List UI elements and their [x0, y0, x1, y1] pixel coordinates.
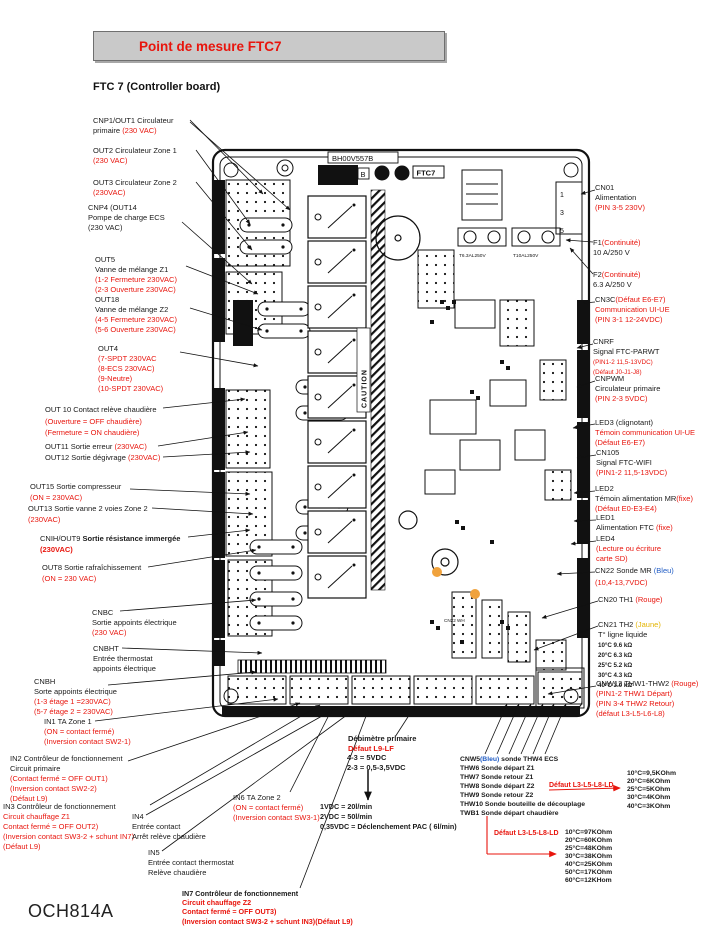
- callout-line: 20°C 6.3 kΩ: [598, 650, 661, 660]
- callout-text: CNP4 (OUT14: [88, 203, 137, 212]
- callout-line: OUT5: [95, 255, 177, 265]
- callout-text: (Inversion contact SW2-1): [44, 737, 131, 746]
- callout-text: (Rouge): [635, 595, 662, 604]
- callout-text: (5-6 Ouverture 230VAC): [95, 325, 176, 334]
- callout-in2: IN2 Contrôleur de fonctionnementCircuit …: [10, 754, 123, 803]
- callout-line: (ON = 230 VAC): [42, 574, 141, 585]
- callout-line: (ON = 230VAC): [30, 492, 121, 503]
- callout-text: THW8 Sonde départ Z2: [460, 783, 534, 790]
- callout-line: (défaut L3-L5-L6-L8): [596, 709, 698, 719]
- callout-debitmetre: Débimètre primaireDéfaut L9-LF: [348, 734, 416, 754]
- callout-line: Témoin communication UI-UE: [595, 428, 695, 438]
- callout-text: (10,4-13,7VDC): [595, 578, 648, 587]
- callout-line: Contact fermé = OFF OUT2): [3, 822, 134, 832]
- callout-cnpwm: CNPWMCirculateur primaire(PIN 2-3 5VDC): [595, 374, 660, 404]
- callout-text: 40°C=3KOhm: [627, 803, 670, 810]
- callout-text: (230 VAC): [122, 126, 156, 135]
- callout-text: Témoin alimentation MR: [595, 494, 676, 503]
- callout-line: F2(Continuité): [593, 270, 641, 280]
- callout-line: CNBC: [92, 608, 177, 618]
- callout-text: (Ouverture = OFF chaudière): [45, 417, 142, 426]
- cn01-pin-1: 1: [560, 192, 564, 199]
- callout-text: LED1: [596, 513, 615, 522]
- callout-text: (PIN 3-4 THW2 Retour): [596, 699, 674, 708]
- callout-text: Défaut L3-L5-L8-LD: [549, 782, 614, 789]
- callout-line: (PIN 2-3 5VDC): [595, 394, 660, 404]
- callout-text: CN20 TH1: [598, 595, 635, 604]
- callout-text: Communication UI-UE: [595, 305, 670, 314]
- callout-text: (PIN1-2 11,5-13VDC): [593, 359, 653, 366]
- callout-line: CN21 TH2 (Jaune): [598, 620, 661, 630]
- callout-line: (PIN 3-1 12-24VDC): [595, 315, 670, 325]
- callout-in4: IN4Entrée contactArrêt relève chaudière: [132, 812, 206, 842]
- callout-line: THW10 Sonde bouteille de découplage: [460, 800, 585, 809]
- callout-line: 10°C=9,5KOhm: [627, 770, 676, 778]
- callout-text: IN5: [148, 848, 160, 857]
- callout-text: (Rouge): [671, 679, 698, 688]
- ftc7-label: FTC7: [417, 169, 436, 178]
- callout-text: CN105: [596, 448, 619, 457]
- callout-text: Circuit chauffage Z1: [3, 812, 70, 821]
- callout-text: (ON = 230 VAC): [42, 574, 96, 583]
- callout-line: Contact fermé = OFF OUT3): [182, 907, 353, 916]
- callout-line: appoints électrique: [93, 664, 156, 674]
- callout-text: appoints électrique: [93, 664, 156, 673]
- callout-text: (Défaut L9): [3, 842, 41, 851]
- callout-line: Sortie appoints électrique: [92, 618, 177, 628]
- rev-label: B: [361, 170, 366, 179]
- callout-line: primaire (230 VAC): [93, 126, 173, 136]
- callout-led1: LED1Alimentation FTC (fixe): [596, 513, 673, 533]
- callout-line: CNP1/OUT1 Circulateur: [93, 116, 173, 126]
- callout-line: OUT 10 Contact relève chaudière: [45, 404, 157, 416]
- callout-text: 2-3 = 0,5-3,5VDC: [347, 763, 406, 772]
- callout-text: 30°C=38KOhm: [565, 853, 612, 860]
- callout-cnp1: CNP1/OUT1 Circulateurprimaire (230 VAC): [93, 116, 173, 136]
- callout-out12: OUT12 Sortie dégivrage (230VAC): [45, 453, 160, 463]
- callout-text: (230VAC): [114, 442, 146, 451]
- callout-line: IN4: [132, 812, 206, 822]
- callout-text: (Inversion contact SW3-1): [233, 813, 320, 822]
- callout-text: (230 VAC): [88, 223, 122, 232]
- callout-text: OUT18: [95, 295, 119, 304]
- callout-line: IN5: [148, 848, 234, 858]
- callout-line: (4-5 Fermeture 230VAC): [95, 315, 177, 325]
- callout-line: CNBH: [34, 677, 117, 687]
- callout-line: IN6 TA Zone 2: [233, 793, 320, 803]
- callout-line: 60°C=12KHom: [565, 877, 612, 885]
- callout-defaut1: Défaut L3-L5-L8-LD: [549, 782, 614, 790]
- callout-text: (Bleu): [654, 566, 674, 575]
- callout-out13: OUT13 Sortie vanne 2 voies Zone 2(230VAC…: [28, 503, 148, 526]
- callout-out3: OUT3 Circulateur Zone 2(230VAC): [93, 178, 177, 198]
- callout-line: CN20 TH1 (Rouge): [598, 595, 663, 605]
- callout-line: 25°C 5.2 kΩ: [598, 660, 661, 670]
- callout-f1: F1(Continuité)10 A/250 V: [593, 238, 641, 258]
- callout-line: 6.3 A/250 V: [593, 280, 641, 290]
- callout-text: (PIN 3-5 230V): [595, 203, 645, 212]
- callout-ohm1: 10°C=9,5KOhm20°C=6KOhm25°C=5KOhm30°C=4KO…: [627, 770, 676, 811]
- callout-cnbht: CNBHTEntrée thermostatappoints électriqu…: [93, 644, 156, 674]
- callout-line: (Lecture ou écriture: [596, 544, 661, 554]
- callout-text: (Défaut E6-E7): [615, 295, 665, 304]
- callout-text: Alimentation FTC: [596, 523, 656, 532]
- callout-line: 40°C=25KOhm: [565, 861, 612, 869]
- caution-label: CAUTION: [362, 369, 369, 408]
- callout-text: 25°C 5.2 kΩ: [598, 662, 632, 669]
- callout-line: (1-3 étage 1 =230VAC): [34, 697, 117, 707]
- callout-line: CN3C(Défaut E6-E7): [595, 295, 670, 305]
- callout-line: (PIN1-2 THW1 Départ): [596, 689, 698, 699]
- callout-text: (230VAC): [128, 453, 160, 462]
- callout-line: CN22 Sonde MR (Bleu): [595, 565, 674, 577]
- callout-line: (Inversion contact SW2-2): [10, 784, 123, 794]
- callout-text: THW10 Sonde bouteille de découplage: [460, 801, 585, 808]
- callout-in3: IN3 Contrôleur de fonctionnementCircuit …: [3, 802, 134, 851]
- callout-text: OUT13 Sortie vanne 2 voies Zone 2: [28, 504, 148, 513]
- callout-text: (Continuité): [602, 238, 641, 247]
- callout-text: OUT11 Sortie erreur: [45, 442, 114, 451]
- callout-text: (Inversion contact SW3-2 + schunt IN3)(D…: [182, 917, 353, 926]
- callout-text: 50°C=17KOhm: [565, 869, 612, 876]
- callout-line: Circuit chauffage Z2: [182, 898, 353, 907]
- callout-line: (Défaut L9): [3, 842, 134, 852]
- callout-text: (ON = 230VAC): [30, 493, 82, 502]
- callout-line: OUT4: [98, 344, 163, 354]
- callout-line: OUT18: [95, 295, 177, 305]
- callout-line: OUT8 Sortie rafraîchissement: [42, 563, 141, 574]
- callout-cn22: CN22 Sonde MR (Bleu)(10,4-13,7VDC): [595, 565, 674, 589]
- callout-text: (5-7 étage 2 = 230VAC): [34, 707, 113, 716]
- callout-line: (230 VAC): [92, 628, 177, 638]
- callout-text: Entrée thermostat: [93, 654, 153, 663]
- callout-in6: IN6 TA Zone 2(ON = contact fermé)(Invers…: [233, 793, 320, 823]
- callout-line: (PIN 3-4 THW2 Retour): [596, 699, 698, 709]
- callout-text: THW7 Sonde retour Z1: [460, 774, 533, 781]
- callout-text: (ON = contact fermé): [233, 803, 303, 812]
- callout-text: 10°C=97KOhm: [565, 829, 612, 836]
- callout-text: LED4: [596, 534, 615, 543]
- callout-line: IN2 Contrôleur de fonctionnement: [10, 754, 123, 764]
- callout-line: Relève chaudière: [148, 868, 234, 878]
- callout-text: OUT12 Sortie dégivrage: [45, 453, 128, 462]
- callout-cnw12: CNW12 THW1-THW2 (Rouge)(PIN1-2 THW1 Dépa…: [596, 679, 698, 719]
- callout-line: (ON = contact fermé): [233, 803, 320, 813]
- callout-text: (230VAC): [40, 545, 73, 554]
- callout-text: LED3 (clignotant): [595, 418, 653, 427]
- callout-out4: OUT4(7-SPDT 230VAC(8-ECS 230VAC)(9-Neutr…: [98, 344, 163, 393]
- cn01-pin-3: 3: [560, 210, 564, 217]
- callout-line: LED2: [595, 484, 693, 494]
- callout-text: OUT8 Sortie rafraîchissement: [42, 563, 141, 572]
- callout-text: 1VDC = 20l/min: [320, 802, 372, 811]
- callout-text: CN22 Sonde MR: [595, 566, 654, 575]
- callout-line: (Fermeture = ON chaudière): [45, 427, 157, 439]
- callout-line: (7-SPDT 230VAC: [98, 354, 163, 364]
- document-reference: OCH814A: [28, 901, 114, 922]
- callout-line: 10°C=97KOhm: [565, 829, 612, 837]
- callout-text: IN1 TA Zone 1: [44, 717, 92, 726]
- callout-line: (ON = contact fermé): [44, 727, 131, 737]
- callout-line: Sorte appoints électrique: [34, 687, 117, 697]
- callout-in1: IN1 TA Zone 1(ON = contact fermé)(Invers…: [44, 717, 131, 747]
- callout-text: (fixe): [656, 523, 673, 532]
- callout-text: (Contact fermé = OFF OUT1): [10, 774, 108, 783]
- callout-text: CNW5: [460, 756, 480, 763]
- callout-text: Contact fermé = OFF OUT2): [3, 822, 98, 831]
- callout-text: Relève chaudière: [148, 868, 206, 877]
- callout-out15: OUT15 Sortie compresseur(ON = 230VAC): [30, 481, 121, 504]
- callout-line: OUT11 Sortie erreur (230VAC): [45, 442, 147, 452]
- callout-line: (Inversion contact SW3-2 + schunt IN3)(D…: [182, 917, 353, 926]
- callout-line: 2-3 = 0,5-3,5VDC: [347, 763, 406, 773]
- callout-text: (Défaut E0-E3-E4): [595, 504, 657, 513]
- callout-line: (1-2 Fermeture 230VAC): [95, 275, 177, 285]
- callout-line: (Défaut E6-E7): [595, 438, 695, 448]
- callout-cnih: CNIH/OUT9 Sortie résistance immergée(230…: [40, 533, 180, 556]
- callout-line: (Inversion contact SW3-2 + schunt IN7): [3, 832, 134, 842]
- callout-text: 60°C=12KHom: [565, 877, 612, 884]
- callout-text: (Lecture ou écriture: [596, 544, 661, 553]
- callout-in7: IN7 Contrôleur de fonctionnementCircuit …: [182, 889, 353, 926]
- callout-out18: OUT18Vanne de mélange Z2(4-5 Fermeture 2…: [95, 295, 177, 335]
- callout-text: (1-3 étage 1 =230VAC): [34, 697, 111, 706]
- callout-text: sonde THW4 ECS: [499, 756, 558, 763]
- callout-led2: LED2Témoin alimentation MR(fixe)(Défaut …: [595, 484, 693, 514]
- callout-cnbc: CNBCSortie appoints électrique(230 VAC): [92, 608, 177, 638]
- callout-text: CNW12 THW1-THW2: [596, 679, 671, 688]
- callout-line: CNW5(Bleu) sonde THW4 ECS: [460, 755, 585, 764]
- callout-line: 2VDC = 50l/min: [320, 812, 457, 822]
- callout-line: Pompe de charge ECS: [88, 213, 165, 223]
- callout-text: (230VAC): [28, 515, 60, 524]
- title-box: Point de mesure FTC7: [93, 31, 445, 61]
- callout-line: LED1: [596, 513, 673, 523]
- callout-line: Circulateur primaire: [595, 384, 660, 394]
- callout-text: 20°C=60KOhm: [565, 837, 612, 844]
- callout-text: 6.3 A/250 V: [593, 280, 632, 289]
- callout-text: (230 VAC): [92, 628, 126, 637]
- callout-text: (fixe): [676, 494, 693, 503]
- callout-cnrf: CNRFSignal FTC-PARWT(PIN1-2 11,5-13VDC)(…: [593, 337, 659, 377]
- callout-line: CNP4 (OUT14: [88, 203, 165, 213]
- cn22-wh-label: CN22 WH: [444, 618, 465, 623]
- callout-text: 40°C=25KOhm: [565, 861, 612, 868]
- callout-text: 30°C 4.3 kΩ: [598, 672, 632, 679]
- callout-line: (PIN1-2 11,5-13VDC): [596, 468, 667, 478]
- part-number: BH00V557B: [332, 154, 373, 163]
- callout-line: THW9 Sonde retour Z2: [460, 791, 585, 800]
- callout-line: (Inversion contact SW3-1): [233, 813, 320, 823]
- board-subtitle: FTC 7 (Controller board): [93, 81, 220, 93]
- callout-line: THW7 Sonde retour Z1: [460, 773, 585, 782]
- callout-text: OUT15 Sortie compresseur: [30, 482, 121, 491]
- callout-text: CN01: [595, 183, 614, 192]
- callout-text: (Fermeture = ON chaudière): [45, 428, 139, 437]
- callout-line: 0,35VDC = Déclenchement PAC ( 6l/min): [320, 822, 457, 832]
- callout-text: (2-3 Ouverture 230VAC): [95, 285, 176, 294]
- callout-line: IN7 Contrôleur de fonctionnement: [182, 889, 353, 898]
- callout-line: 10°C 9.6 kΩ: [598, 640, 661, 650]
- callout-text: CNIH/OUT9: [40, 534, 83, 543]
- callout-text: (230 VAC): [93, 156, 127, 165]
- callout-line: 4-3 = 5VDC: [347, 753, 406, 763]
- callout-line: OUT15 Sortie compresseur: [30, 481, 121, 492]
- callout-cnp4: CNP4 (OUT14Pompe de charge ECS(230 VAC): [88, 203, 165, 233]
- page: Point de mesure FTC7 FTC 7 (Controller b…: [0, 0, 725, 935]
- callout-line: (PIN1-2 11,5-13VDC): [593, 357, 659, 367]
- callout-line: Défaut L3-L5-L8-LD: [494, 830, 559, 838]
- callout-out2: OUT2 Circulateur Zone 1(230 VAC): [93, 146, 177, 166]
- callout-defaut2: Défaut L3-L5-L8-LD: [494, 830, 559, 838]
- callout-text: THW6 Sonde départ Z1: [460, 765, 534, 772]
- callout-line: LED3 (clignotant): [595, 418, 695, 428]
- callout-text: Débimètre primaire: [348, 734, 416, 743]
- callout-line: Vanne de mélange Z1: [95, 265, 177, 275]
- callout-text: Entrée contact thermostat: [148, 858, 234, 867]
- callout-text: (PIN1-2 THW1 Départ): [596, 689, 672, 698]
- callout-text: primaire: [93, 126, 122, 135]
- callout-line: (230VAC): [28, 514, 148, 525]
- callout-line: (Contact fermé = OFF OUT1): [10, 774, 123, 784]
- callout-text: CN21 TH2: [598, 620, 635, 629]
- callout-line: Vanne de mélange Z2: [95, 305, 177, 315]
- callout-ohm2: 10°C=97KOhm20°C=60KOhm25°C=48KOhm30°C=38…: [565, 829, 612, 885]
- callout-line: TWB1 Sonde départ chaudière: [460, 809, 585, 818]
- callout-text: CNBHT: [93, 644, 119, 653]
- callout-line: Témoin alimentation MR(fixe): [595, 494, 693, 504]
- relay-can: [395, 166, 410, 181]
- fuse1-label: T6.3AL250V: [459, 253, 486, 259]
- callout-line: CN01: [595, 183, 645, 193]
- callout-cn3c: CN3C(Défaut E6-E7)Communication UI-UE(PI…: [595, 295, 670, 325]
- callout-text: 4-3 = 5VDC: [347, 753, 386, 762]
- callout-line: OUT13 Sortie vanne 2 voies Zone 2: [28, 503, 148, 514]
- callout-line: OUT12 Sortie dégivrage (230VAC): [45, 453, 160, 463]
- callout-text: IN6 TA Zone 2: [233, 793, 281, 802]
- callout-text: (Inversion contact SW3-2 + schunt IN7): [3, 832, 134, 841]
- callout-line: (PIN 3-5 230V): [595, 203, 645, 213]
- callout-text: IN3 Contrôleur de fonctionnement: [3, 802, 116, 811]
- callout-text: (230VAC): [93, 188, 125, 197]
- callout-text: carte SD): [596, 554, 628, 563]
- callout-text: (PIN 3-1 12-24VDC): [595, 315, 663, 324]
- page-title: Point de mesure FTC7: [94, 39, 282, 54]
- callout-line: Défaut L3-L5-L8-LD: [549, 782, 614, 790]
- callout-line: (2-3 Ouverture 230VAC): [95, 285, 177, 295]
- callout-line: 30°C=38KOhm: [565, 853, 612, 861]
- callout-text: OUT5: [95, 255, 115, 264]
- callout-line: (Inversion contact SW2-1): [44, 737, 131, 747]
- callout-line: CNIH/OUT9 Sortie résistance immergée: [40, 533, 180, 544]
- pcb-components: [214, 165, 588, 715]
- callout-text: Sortie appoints électrique: [92, 618, 177, 627]
- callout-text: F1: [593, 238, 602, 247]
- callout-line: Entrée contact: [132, 822, 206, 832]
- callout-cn01: CN01Alimentation(PIN 3-5 230V): [595, 183, 645, 213]
- callout-line: Entrée thermostat: [93, 654, 156, 664]
- callout-line: 50°C=17KOhm: [565, 869, 612, 877]
- callout-text: IN2 Contrôleur de fonctionnement: [10, 754, 123, 763]
- callout-text: Sortie résistance immergée: [83, 534, 181, 543]
- callout-text: (Continuité): [602, 270, 641, 279]
- callout-text: Entrée contact: [132, 822, 180, 831]
- callout-text: (4-5 Fermeture 230VAC): [95, 315, 177, 324]
- callout-line: F1(Continuité): [593, 238, 641, 248]
- callout-text: 25°C=5KOhm: [627, 786, 670, 793]
- callout-text: (1-2 Fermeture 230VAC): [95, 275, 177, 284]
- callout-line: CNPWM: [595, 374, 660, 384]
- callout-line: 1VDC = 20l/min: [320, 802, 457, 812]
- callout-line: OUT2 Circulateur Zone 1: [93, 146, 177, 156]
- callout-text: Circulateur primaire: [595, 384, 660, 393]
- callout-text: (9-Neutre): [98, 374, 132, 383]
- callout-line: CN105: [596, 448, 667, 458]
- callout-text: Signal FTC-PARWT: [593, 347, 659, 356]
- callout-text: THW9 Sonde retour Z2: [460, 792, 533, 799]
- callout-line: (230VAC): [93, 188, 177, 198]
- callout-text: CN3C: [595, 295, 615, 304]
- callout-text: F2: [593, 270, 602, 279]
- callout-line: CNRF: [593, 337, 659, 347]
- fuse2-label: T10AL250V: [513, 253, 539, 259]
- callout-text: Arrêt relève chaudière: [132, 832, 206, 841]
- callout-text: 30°C=4KOhm: [627, 794, 670, 801]
- callout-cn105: CN105Signal FTC-WIFI(PIN1-2 11,5-13VDC): [596, 448, 667, 478]
- callout-line: Arrêt relève chaudière: [132, 832, 206, 842]
- callout-text: OUT 10 Contact relève chaudière: [45, 405, 157, 414]
- callout-debit_flow: 1VDC = 20l/min2VDC = 50l/min0,35VDC = Dé…: [320, 802, 457, 832]
- callout-line: LED4: [596, 534, 661, 544]
- callout-text: (10-SPDT 230VAC): [98, 384, 163, 393]
- callout-text: Pompe de charge ECS: [88, 213, 165, 222]
- callout-text: 10°C 9.6 kΩ: [598, 642, 632, 649]
- callout-line: Circuit primaire: [10, 764, 123, 774]
- callout-text: OUT2 Circulateur Zone 1: [93, 146, 177, 155]
- callout-text: 2VDC = 50l/min: [320, 812, 372, 821]
- callout-debit_vdc: 4-3 = 5VDC2-3 = 0,5-3,5VDC: [347, 753, 406, 773]
- callout-line: Débimètre primaire: [348, 734, 416, 744]
- callout-text: (7-SPDT 230VAC: [98, 354, 157, 363]
- callout-out11: OUT11 Sortie erreur (230VAC): [45, 442, 147, 452]
- relay-can: [375, 166, 390, 181]
- callout-text: 20°C 6.3 kΩ: [598, 652, 632, 659]
- callout-line: (230VAC): [40, 544, 180, 555]
- callout-line: IN1 TA Zone 1: [44, 717, 131, 727]
- callout-out10: OUT 10 Contact relève chaudière(Ouvertur…: [45, 404, 157, 439]
- callout-text: IN4: [132, 812, 144, 821]
- callout-text: OUT4: [98, 344, 118, 353]
- callout-text: 20°C=6KOhm: [627, 778, 670, 785]
- callout-line: CNBHT: [93, 644, 156, 654]
- callout-line: 10 A/250 V: [593, 248, 641, 258]
- callout-text: 25°C=48KOhm: [565, 845, 612, 852]
- callout-line: 30°C=4KOhm: [627, 794, 676, 802]
- callout-text: (ON = contact fermé): [44, 727, 114, 736]
- callout-text: Alimentation: [595, 193, 636, 202]
- callout-line: (230 VAC): [93, 156, 177, 166]
- callout-text: Défaut L3-L5-L8-LD: [494, 830, 559, 837]
- callout-line: Alimentation: [595, 193, 645, 203]
- callout-line: Signal FTC-WIFI: [596, 458, 667, 468]
- callout-text: Vanne de mélange Z2: [95, 305, 168, 314]
- callout-text: (PIN 2-3 5VDC): [595, 394, 648, 403]
- callout-line: OUT3 Circulateur Zone 2: [93, 178, 177, 188]
- callout-line: 25°C=48KOhm: [565, 845, 612, 853]
- callout-line: 40°C=3KOhm: [627, 803, 676, 811]
- callout-line: 20°C=60KOhm: [565, 837, 612, 845]
- callout-led3: LED3 (clignotant)Témoin communication UI…: [595, 418, 695, 448]
